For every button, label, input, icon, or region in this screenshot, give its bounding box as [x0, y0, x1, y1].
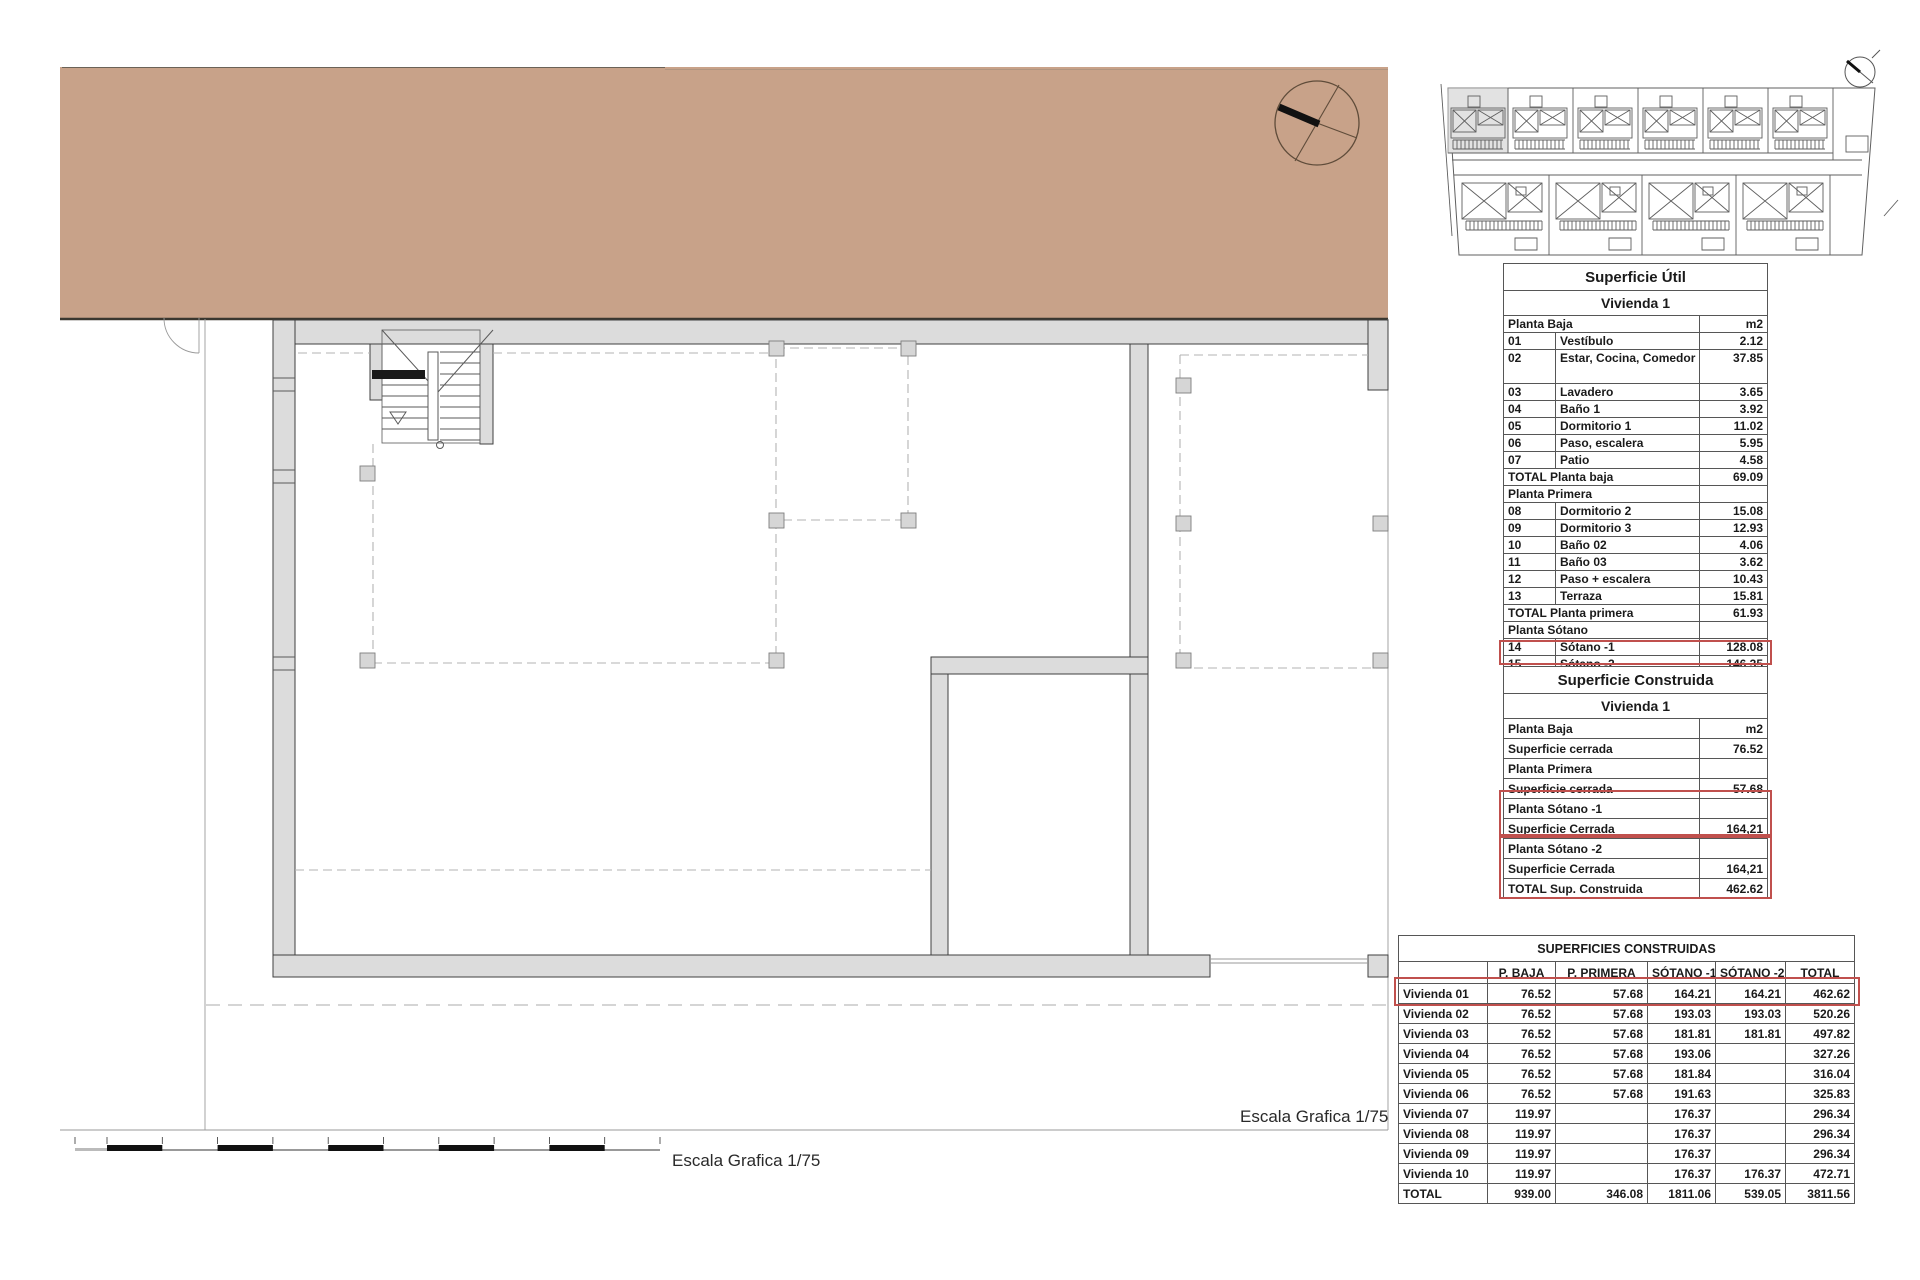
table-cell: Superficie Cerrada: [1504, 819, 1700, 839]
table-cell: 128.08: [1700, 639, 1768, 656]
table-row: Vivienda 0676.5257.68191.63325.83: [1399, 1084, 1855, 1104]
table-row: Vivienda 0276.5257.68193.03193.03520.26: [1399, 1004, 1855, 1024]
table-cell: 296.34: [1786, 1124, 1855, 1144]
row-sup-cerrada-sotano-1: Superficie Cerrada164,21: [1504, 819, 1768, 839]
table-cell: 76.52: [1488, 1024, 1556, 1044]
site-boundary-lines: [60, 319, 1388, 1130]
row-sotano-1: 14Sótano -1128.08: [1504, 639, 1768, 656]
table-row: 08Dormitorio 215.08: [1504, 503, 1768, 520]
table-row: Vivienda 0576.5257.68181.84316.04: [1399, 1064, 1855, 1084]
table-cell: 164,21: [1700, 859, 1768, 879]
table-cell: 61.93: [1700, 605, 1768, 622]
table-cell: 15.08: [1700, 503, 1768, 520]
table-cell: 57.68: [1556, 984, 1648, 1004]
table-cell: 3811.56: [1786, 1184, 1855, 1204]
architectural-plan-sheet: Escala Grafica 1/75 Escala Grafica 1/75: [0, 0, 1920, 1280]
table-cell: Lavadero: [1556, 384, 1700, 401]
table-cell: 76.52: [1488, 1064, 1556, 1084]
table-cell: 164.21: [1648, 984, 1716, 1004]
structural-columns: [360, 341, 1388, 668]
table-cell: 164.21: [1716, 984, 1786, 1004]
table-cell: Dormitorio 1: [1556, 418, 1700, 435]
table-row: 06Paso, escalera5.95: [1504, 435, 1768, 452]
table-cell: [1716, 1064, 1786, 1084]
table-row: Planta Sótano -2: [1504, 839, 1768, 859]
table-cell: 03: [1504, 384, 1556, 401]
entry-door-arc: [164, 318, 199, 353]
table-row: Vivienda 0476.5257.68193.06327.26: [1399, 1044, 1855, 1064]
table-row: 01Vestíbulo2.12: [1504, 333, 1768, 350]
table-cell: [1716, 1104, 1786, 1124]
table-cell: 12.93: [1700, 520, 1768, 537]
table-cell: 472.71: [1786, 1164, 1855, 1184]
table-cell: 193.03: [1648, 1004, 1716, 1024]
row-planta-sotano-1: Planta Sótano -1: [1504, 799, 1768, 819]
table-cell: Baño 03: [1556, 554, 1700, 571]
table-row: Planta Sótano: [1504, 622, 1768, 639]
table-cell: 76.52: [1488, 984, 1556, 1004]
table-cell: 520.26: [1786, 1004, 1855, 1024]
table-cell: 57.68: [1556, 1004, 1648, 1024]
table-cell: 1811.06: [1648, 1184, 1716, 1204]
table-cell: Vivienda 09: [1399, 1144, 1488, 1164]
table-cell: 37.85: [1700, 350, 1768, 384]
table-cell: [1700, 839, 1768, 859]
table-cell: [1556, 1124, 1648, 1144]
table-cell: 57.68: [1700, 779, 1768, 799]
table-cell: 57.68: [1556, 1044, 1648, 1064]
sums-table-title: SUPERFICIES CONSTRUIDAS: [1399, 936, 1855, 962]
table-cell: 939.00: [1488, 1184, 1556, 1204]
table-cell: Baño 1: [1556, 401, 1700, 418]
table-cell: 181.81: [1648, 1024, 1716, 1044]
table-row: Planta Bajam2: [1504, 719, 1768, 739]
table-cell: Planta Sótano -1: [1504, 799, 1700, 819]
table-cell: TOTAL Planta primera: [1504, 605, 1700, 622]
cons-table-subtitle: Vivienda 1: [1504, 694, 1768, 719]
table-cell: 327.26: [1786, 1044, 1855, 1064]
table-cell: 5.95: [1700, 435, 1768, 452]
table-cell: Planta Primera: [1504, 486, 1700, 503]
table-cell: 13: [1504, 588, 1556, 605]
table-cell: [1716, 1084, 1786, 1104]
table-cell: Sótano -1: [1556, 639, 1700, 656]
superficies-construidas-table: SUPERFICIES CONSTRUIDAS P. BAJAP. PRIMER…: [1398, 935, 1854, 1204]
table-row: TOTAL Sup. Construida462.62: [1504, 879, 1768, 899]
table-cell: 3.65: [1700, 384, 1768, 401]
table-cell: Paso + escalera: [1556, 571, 1700, 588]
table-cell: TOTAL: [1786, 962, 1855, 984]
upper-floor-dashed-outline: [295, 348, 1388, 870]
table-cell: 176.37: [1648, 1124, 1716, 1144]
table-cell: 10: [1504, 537, 1556, 554]
table-row: 11Baño 033.62: [1504, 554, 1768, 571]
table-cell: [1399, 962, 1488, 984]
table-row: Vivienda 10119.97176.37176.37472.71: [1399, 1164, 1855, 1184]
table-cell: 10.43: [1700, 571, 1768, 588]
table-row: TOTAL Planta baja69.09: [1504, 469, 1768, 486]
table-cell: 191.63: [1648, 1084, 1716, 1104]
table-cell: 3.92: [1700, 401, 1768, 418]
table-row: 05Dormitorio 111.02: [1504, 418, 1768, 435]
superficie-construida-table: Superficie Construida Vivienda 1 Planta …: [1503, 666, 1767, 899]
table-cell: Superficie cerrada: [1504, 739, 1700, 759]
table-cell: Dormitorio 2: [1556, 503, 1700, 520]
table-cell: TOTAL Sup. Construida: [1504, 879, 1700, 899]
table-cell: 3.62: [1700, 554, 1768, 571]
table-cell: [1716, 1144, 1786, 1164]
table-cell: 119.97: [1488, 1144, 1556, 1164]
table-cell: 119.97: [1488, 1104, 1556, 1124]
table-cell: m2: [1700, 316, 1768, 333]
table-cell: Planta Baja: [1504, 719, 1700, 739]
table-cell: 176.37: [1648, 1104, 1716, 1124]
table-cell: 193.03: [1716, 1004, 1786, 1024]
table-cell: Estar, Cocina, Comedor: [1556, 350, 1700, 384]
table-cell: 119.97: [1488, 1164, 1556, 1184]
cons-table-title: Superficie Construida: [1504, 667, 1768, 694]
table-cell: TOTAL Planta baja: [1504, 469, 1700, 486]
table-row: Vivienda 09119.97176.37296.34: [1399, 1144, 1855, 1164]
table-cell: 4.58: [1700, 452, 1768, 469]
building-walls: [273, 320, 1388, 977]
table-cell: 2.12: [1700, 333, 1768, 350]
table-cell: 14: [1504, 639, 1556, 656]
table-cell: [1700, 799, 1768, 819]
util-table-subtitle: Vivienda 1: [1504, 291, 1768, 316]
table-cell: 193.06: [1648, 1044, 1716, 1064]
terrain-region: [60, 67, 1388, 319]
graphic-scale-bar: [75, 1137, 660, 1151]
table-row: Superficie cerrada57.68: [1504, 779, 1768, 799]
table-cell: 57.68: [1556, 1024, 1648, 1044]
table-cell: 296.34: [1786, 1104, 1855, 1124]
table-cell: Vivienda 10: [1399, 1164, 1488, 1184]
table-cell: SÓTANO -2: [1716, 962, 1786, 984]
table-row: 03Lavadero3.65: [1504, 384, 1768, 401]
table-cell: Planta Sótano: [1504, 622, 1700, 639]
site-mini-compass-icon: [1845, 50, 1880, 87]
table-cell: [1700, 486, 1768, 503]
table-row: 12Paso + escalera10.43: [1504, 571, 1768, 588]
table-cell: Terraza: [1556, 588, 1700, 605]
table-cell: 346.08: [1556, 1184, 1648, 1204]
table-cell: Vivienda 08: [1399, 1124, 1488, 1144]
table-cell: 316.04: [1786, 1064, 1855, 1084]
util-table-title: Superficie Útil: [1504, 264, 1768, 291]
table-row: Vivienda 0376.5257.68181.81181.81497.82: [1399, 1024, 1855, 1044]
site-key-plan: [1441, 50, 1898, 255]
table-cell: 76.52: [1488, 1084, 1556, 1104]
table-cell: 11: [1504, 554, 1556, 571]
table-cell: 76.52: [1488, 1004, 1556, 1024]
table-cell: 164,21: [1700, 819, 1768, 839]
table-cell: [1700, 622, 1768, 639]
table-cell: Superficie Cerrada: [1504, 859, 1700, 879]
table-cell: [1716, 1124, 1786, 1144]
table-row: 02Estar, Cocina, Comedor37.85: [1504, 350, 1768, 384]
table-cell: 01: [1504, 333, 1556, 350]
table-row: 07Patio4.58: [1504, 452, 1768, 469]
staircase: [372, 330, 493, 449]
table-cell: Paso, escalera: [1556, 435, 1700, 452]
table-cell: [1556, 1164, 1648, 1184]
table-row: Superficie Cerrada164,21: [1504, 859, 1768, 879]
table-cell: 57.68: [1556, 1064, 1648, 1084]
table-cell: Vivienda 04: [1399, 1044, 1488, 1064]
table-cell: 08: [1504, 503, 1556, 520]
table-cell: 539.05: [1716, 1184, 1786, 1204]
table-cell: Baño 02: [1556, 537, 1700, 554]
table-cell: Vivienda 06: [1399, 1084, 1488, 1104]
table-row: Vivienda 07119.97176.37296.34: [1399, 1104, 1855, 1124]
table-cell: 462.62: [1786, 984, 1855, 1004]
table-row: 10Baño 024.06: [1504, 537, 1768, 554]
stair-cut-line: [372, 370, 425, 379]
table-cell: 181.81: [1716, 1024, 1786, 1044]
table-cell: 07: [1504, 452, 1556, 469]
table-cell: P. BAJA: [1488, 962, 1556, 984]
table-cell: Planta Sótano -2: [1504, 839, 1700, 859]
table-row: 09Dormitorio 312.93: [1504, 520, 1768, 537]
table-row: P. BAJAP. PRIMERASÓTANO -1SÓTANO -2TOTAL: [1399, 962, 1855, 984]
scale-label-bottom: Escala Grafica 1/75: [672, 1151, 820, 1170]
table-cell: TOTAL: [1399, 1184, 1488, 1204]
table-cell: Superficie cerrada: [1504, 779, 1700, 799]
table-cell: Planta Baja: [1504, 316, 1700, 333]
table-cell: [1700, 759, 1768, 779]
table-cell: m2: [1700, 719, 1768, 739]
table-cell: [1716, 1044, 1786, 1064]
table-cell: 176.37: [1648, 1164, 1716, 1184]
table-cell: 05: [1504, 418, 1556, 435]
table-cell: SÓTANO -1: [1648, 962, 1716, 984]
table-row: TOTAL Planta primera61.93: [1504, 605, 1768, 622]
table-row: TOTAL939.00346.081811.06539.053811.56: [1399, 1184, 1855, 1204]
table-row: Planta Primera: [1504, 486, 1768, 503]
table-row: Superficie cerrada76.52: [1504, 739, 1768, 759]
table-cell: Patio: [1556, 452, 1700, 469]
table-cell: Planta Primera: [1504, 759, 1700, 779]
table-cell: 325.83: [1786, 1084, 1855, 1104]
table-cell: 76.52: [1700, 739, 1768, 759]
table-cell: 176.37: [1648, 1144, 1716, 1164]
table-row: Planta Bajam2: [1504, 316, 1768, 333]
table-row: Planta Primera: [1504, 759, 1768, 779]
table-cell: Dormitorio 3: [1556, 520, 1700, 537]
table-cell: 69.09: [1700, 469, 1768, 486]
table-cell: Vivienda 02: [1399, 1004, 1488, 1024]
table-cell: 462.62: [1700, 879, 1768, 899]
table-cell: 09: [1504, 520, 1556, 537]
table-cell: 4.06: [1700, 537, 1768, 554]
superficie-util-table: Superficie Útil Vivienda 1 Planta Bajam2…: [1503, 263, 1767, 690]
table-cell: Vivienda 07: [1399, 1104, 1488, 1124]
table-cell: 76.52: [1488, 1044, 1556, 1064]
table-cell: 176.37: [1716, 1164, 1786, 1184]
table-row: 13Terraza15.81: [1504, 588, 1768, 605]
table-cell: Vivienda 01: [1399, 984, 1488, 1004]
table-cell: [1556, 1104, 1648, 1124]
table-cell: 296.34: [1786, 1144, 1855, 1164]
table-cell: 119.97: [1488, 1124, 1556, 1144]
table-cell: 04: [1504, 401, 1556, 418]
table-cell: Vivienda 03: [1399, 1024, 1488, 1044]
table-row: 04Baño 13.92: [1504, 401, 1768, 418]
table-cell: 497.82: [1786, 1024, 1855, 1044]
row-vivienda-01: Vivienda 0176.5257.68164.21164.21462.62: [1399, 984, 1855, 1004]
table-cell: 06: [1504, 435, 1556, 452]
scale-label-plan: Escala Grafica 1/75: [1240, 1107, 1388, 1126]
table-cell: 57.68: [1556, 1084, 1648, 1104]
table-cell: Vivienda 05: [1399, 1064, 1488, 1084]
table-cell: 11.02: [1700, 418, 1768, 435]
table-cell: 181.84: [1648, 1064, 1716, 1084]
table-cell: 15.81: [1700, 588, 1768, 605]
table-row: Vivienda 08119.97176.37296.34: [1399, 1124, 1855, 1144]
table-cell: 12: [1504, 571, 1556, 588]
table-cell: Vestíbulo: [1556, 333, 1700, 350]
table-cell: [1556, 1144, 1648, 1164]
table-cell: 02: [1504, 350, 1556, 384]
table-cell: P. PRIMERA: [1556, 962, 1648, 984]
